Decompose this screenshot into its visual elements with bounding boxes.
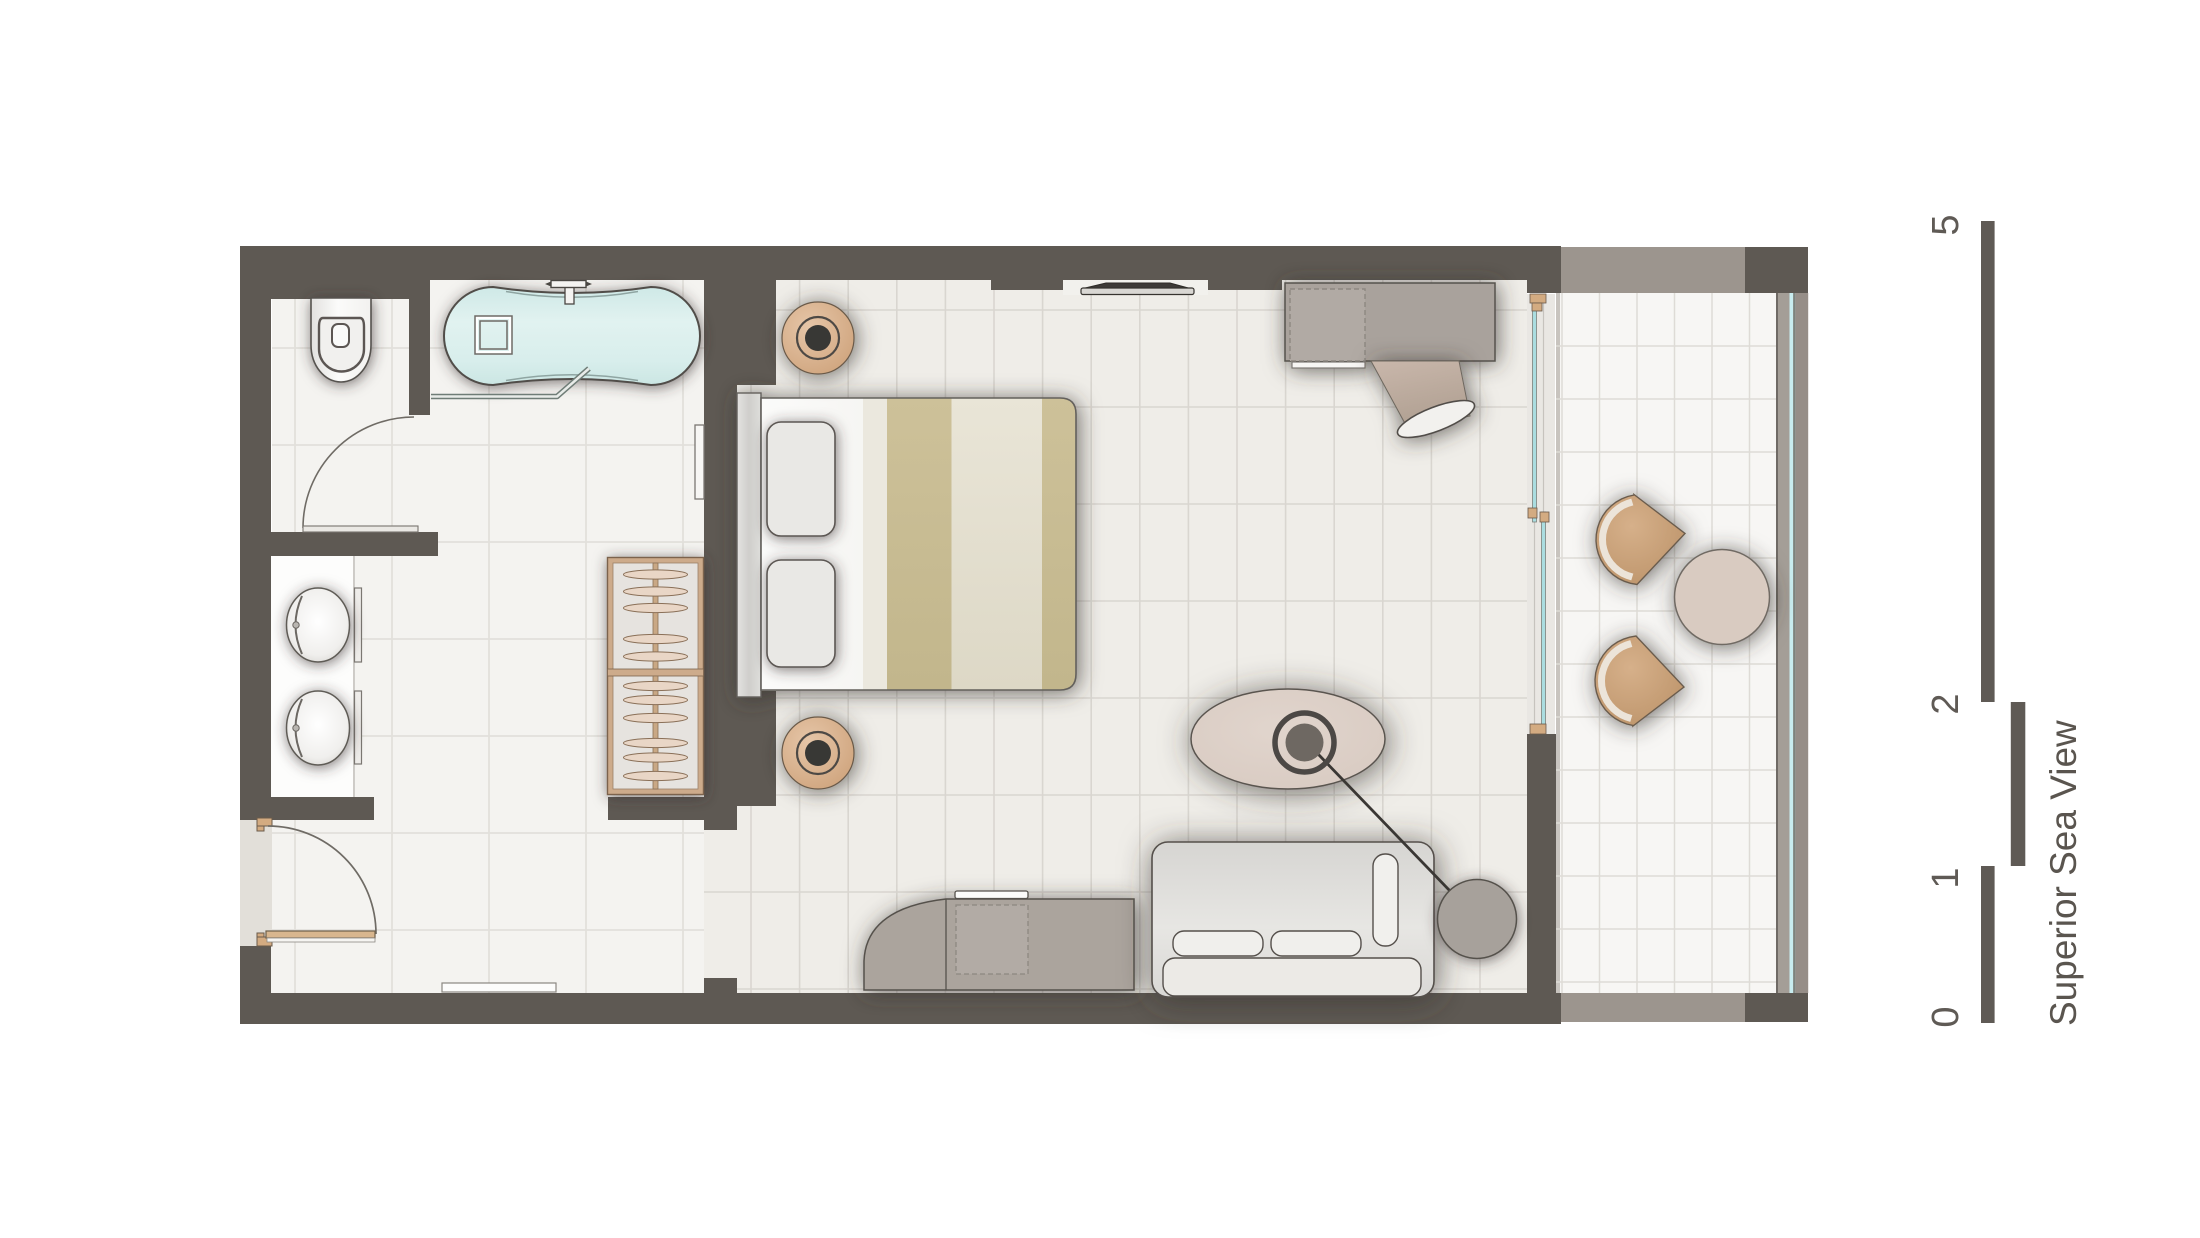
- svg-text:1: 1: [1925, 867, 1967, 888]
- svg-text:Superior Sea View: Superior Sea View: [2043, 720, 2084, 1026]
- svg-text:5: 5: [1925, 214, 1967, 235]
- svg-text:2: 2: [1925, 693, 1967, 714]
- svg-text:0: 0: [1925, 1006, 1967, 1027]
